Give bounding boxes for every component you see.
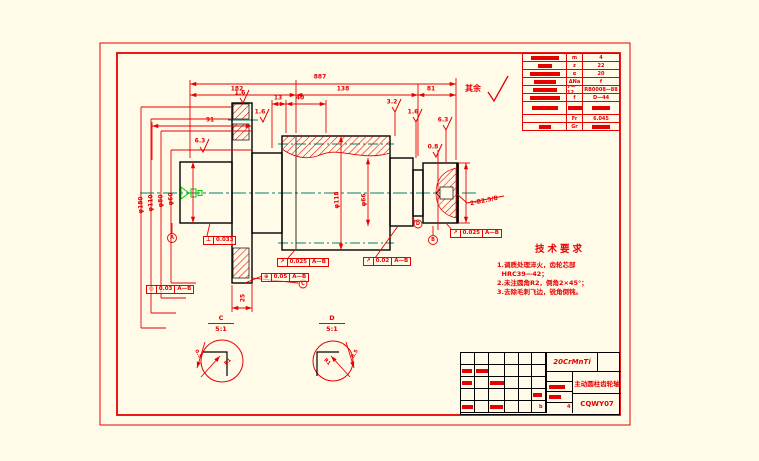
surface-note: 其余 [465,83,481,94]
part-name-cell: 主动圆柱齿轮轴 [572,372,621,394]
tolerance-frames: ⊥0.033◎0.03A—B↗0.025A—B⊕0.05A—B↗0.02A—B↗… [0,0,759,461]
tolerance-frame: ◎0.03A—B [146,285,194,294]
tolerance-frame: ⊕0.05A—B [261,273,309,282]
detail-c-title: C 5:1 [208,314,234,333]
tech-req-line: 3.去除毛刺飞边，锐角倒钝。 [492,288,628,297]
param-table-row [523,102,619,115]
param-table-row: z22 [523,62,619,70]
cad-drawing-sheet: 88718213881134091φ180φ110φ80φ60φ118φ666.… [0,0,759,461]
tech-req-line: 1.调质处理淬火，齿轮芯部 [492,261,628,270]
material-value: 20CrMnTi [553,358,590,366]
param-table-row: ΔNaf [523,78,619,86]
empty-cell [597,353,621,372]
param-table-row: 7—12RB0008—88 [523,86,619,94]
drawing-number: CQWY07 [580,400,614,408]
gear-parameter-table: m4z22α20ΔNaf7—12RB0008—88fD—44Fr6.045Gr [522,53,620,131]
title-block-grid [461,353,546,413]
footer-left: b [539,404,543,410]
detail-d-scale: 5:1 [319,323,345,333]
drawing-number-cell: CQWY07 [572,394,621,413]
tech-req-line: HRC39—42； [492,270,628,279]
tolerance-frame: ↗0.025A—B [277,258,329,267]
footer-right: 4 [567,404,570,410]
detail-c-label: C [219,314,224,322]
param-table-row: fD—44 [523,94,619,102]
param-table-row: α20 [523,70,619,78]
tech-req-title: 技术要求 [492,241,628,255]
param-table-row: m4 [523,54,619,62]
tolerance-frame: ↗0.02A—B [363,257,411,266]
param-table-row: Fr6.045 [523,115,619,123]
detail-d-label: D [329,314,334,322]
part-name: 主动圆柱齿轮轴 [574,378,620,388]
tolerance-frame: ⊥0.033 [203,236,236,245]
tech-req-line: 2.未注圆角R2，倒角2×45°； [492,279,628,288]
tolerance-frame: ↗0.025A—B [450,229,502,238]
param-table-row: Gr [523,123,619,131]
detail-c-scale: 5:1 [208,323,234,333]
detail-d-title: D 5:1 [319,314,345,333]
material-cell: 20CrMnTi [546,353,597,372]
technical-requirements: 技术要求 1.调质处理淬火，齿轮芯部 HRC39—42； 2.未注圆角R2，倒角… [492,241,628,297]
title-block: 20CrMnTi 主动圆柱齿轮轴 CQWY07 b 4 [460,352,620,415]
